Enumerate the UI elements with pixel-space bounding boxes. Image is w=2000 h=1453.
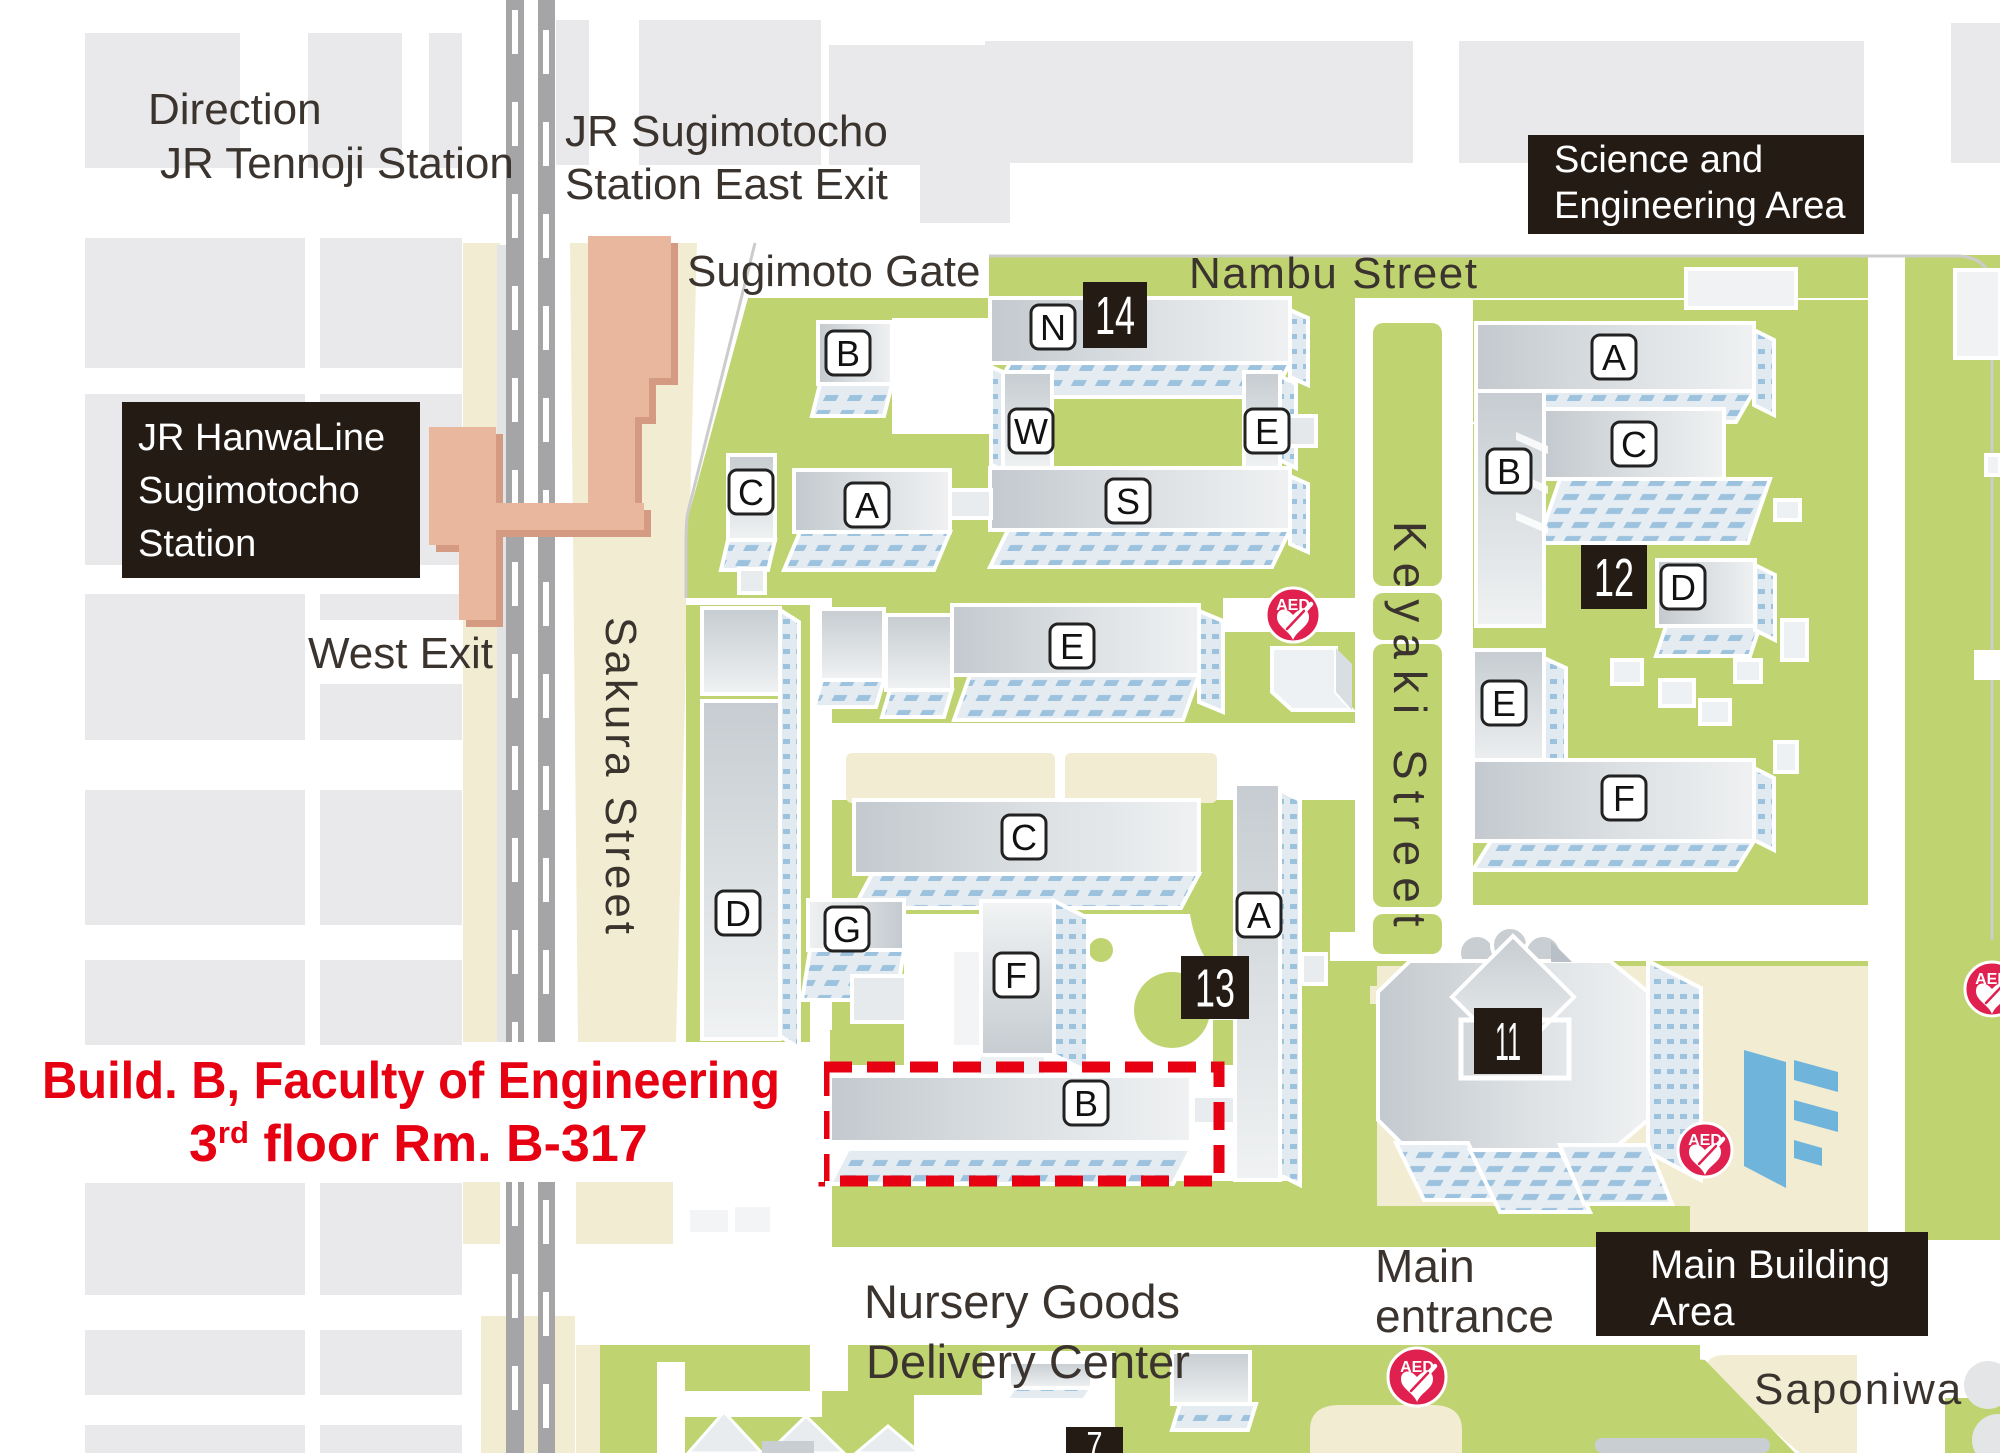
svg-text:C: C [1011, 817, 1037, 858]
svg-text:F: F [1005, 955, 1027, 996]
svg-text:Sugimotocho: Sugimotocho [138, 470, 360, 512]
svg-text:14: 14 [1095, 286, 1135, 346]
svg-text:Sugimoto Gate: Sugimoto Gate [687, 247, 981, 296]
svg-text:Area: Area [1650, 1290, 1735, 1334]
svg-text:JR Sugimotocho: JR Sugimotocho [565, 107, 888, 156]
svg-text:entrance: entrance [1375, 1290, 1554, 1342]
svg-text:N: N [1040, 307, 1066, 348]
svg-text:E: E [1492, 683, 1516, 724]
svg-text:A: A [855, 485, 879, 526]
svg-text:E: E [1060, 626, 1084, 667]
svg-text:B: B [1074, 1083, 1098, 1124]
svg-text:3rd floor Rm. B-317: 3rd floor Rm. B-317 [189, 1115, 648, 1173]
svg-text:C: C [738, 472, 764, 513]
svg-text:D: D [1670, 567, 1696, 608]
svg-text:Sakura Street: Sakura Street [596, 617, 645, 938]
svg-text:Main Building: Main Building [1650, 1243, 1890, 1287]
svg-text:Science and: Science and [1554, 139, 1763, 181]
svg-text:D: D [725, 893, 751, 934]
svg-text:7: 7 [1087, 1424, 1103, 1453]
svg-text:13: 13 [1195, 959, 1235, 1019]
svg-text:Nambu Street: Nambu Street [1189, 249, 1478, 298]
svg-text:B: B [836, 333, 860, 374]
svg-text:West Exit: West Exit [308, 629, 493, 678]
svg-text:S: S [1116, 481, 1140, 522]
svg-text:11: 11 [1495, 1012, 1521, 1072]
svg-text:Keyaki Street: Keyaki Street [1384, 521, 1436, 938]
svg-text:E: E [1255, 411, 1279, 452]
svg-text:A: A [1247, 895, 1271, 936]
svg-text:12: 12 [1594, 548, 1634, 608]
svg-text:JR HanwaLine: JR HanwaLine [138, 417, 385, 459]
svg-text:W: W [1014, 411, 1048, 452]
svg-text:Saponiwa: Saponiwa [1754, 1365, 1963, 1414]
svg-text:Station East Exit: Station East Exit [565, 160, 888, 209]
svg-text:JR Tennoji Station: JR Tennoji Station [160, 139, 514, 188]
svg-text:Station: Station [138, 523, 256, 565]
svg-text:A: A [1602, 337, 1626, 378]
svg-text:Engineering Area: Engineering Area [1554, 185, 1846, 227]
svg-text:C: C [1621, 424, 1647, 465]
svg-text:B: B [1497, 451, 1521, 492]
svg-text:Main: Main [1375, 1240, 1475, 1292]
svg-text:G: G [833, 909, 861, 950]
svg-text:F: F [1613, 778, 1635, 819]
svg-text:Direction: Direction [148, 85, 322, 134]
svg-text:Nursery Goods: Nursery Goods [864, 1275, 1180, 1328]
svg-text:Build. B, Faculty of Engineeri: Build. B, Faculty of Engineering [42, 1052, 780, 1110]
svg-text:Delivery Center: Delivery Center [866, 1335, 1190, 1388]
